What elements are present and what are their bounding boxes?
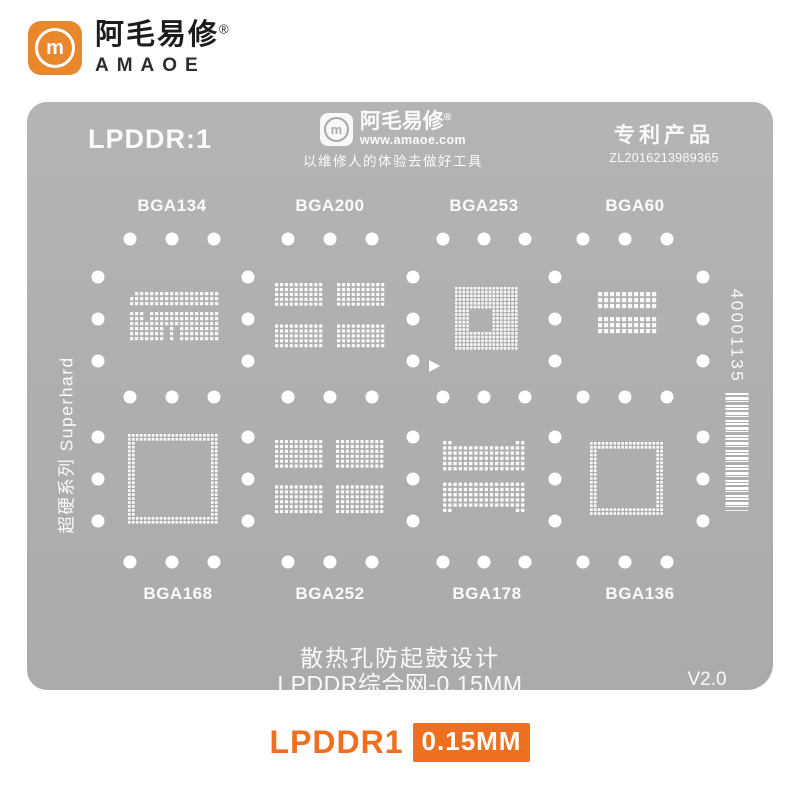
footprint-label: BGA60 [605, 196, 664, 216]
brand-text: 阿毛易修® AMAOE [95, 20, 231, 77]
patent-title: 专利产品 [604, 119, 724, 149]
amaoe-plate-monogram-icon: m [324, 117, 349, 142]
mesh-spec-note: LPDDR综合网-0.15MM [0, 665, 800, 699]
plate-logo-name: 阿毛易修® [360, 111, 466, 133]
brand-name-en: AMAOE [95, 55, 231, 77]
brand-name-cn: 阿毛易修® [95, 20, 231, 52]
footprint-label: BGA168 [143, 584, 212, 604]
plate-center-logo: m 阿毛易修® www.amaoe.com 以维修人的体验去做好工具 [303, 111, 483, 170]
amaoe-plate-logo-icon: m [320, 113, 353, 146]
caption-model: LPDDR1 [270, 724, 404, 761]
amaoe-logo-icon: m [28, 21, 82, 75]
plate-logo-text: 阿毛易修® www.amaoe.com [360, 111, 466, 147]
footprint-label: BGA134 [137, 196, 206, 216]
plate-registered-mark: ® [444, 112, 451, 123]
series-title: LPDDR:1 [88, 124, 212, 155]
amaoe-monogram-icon: m [35, 28, 75, 68]
version-label: V2.0 [687, 669, 726, 691]
serial-number: 40001135 [727, 289, 747, 383]
caption-thickness-badge: 0.15MM [413, 723, 531, 762]
patent-block: 专利产品 ZL2016213989365 [604, 119, 724, 165]
brand-logo: m 阿毛易修® AMAOE [28, 20, 231, 77]
footprint-label: BGA136 [605, 584, 674, 604]
plate-logo-url: www.amaoe.com [360, 133, 466, 147]
footprint-label: BGA252 [295, 584, 364, 604]
footprint-label: BGA200 [295, 196, 364, 216]
bottom-caption: LPDDR1 0.15MM [0, 723, 800, 762]
plate-logo-name-text: 阿毛易修 [360, 110, 444, 133]
brand-name-cn-text: 阿毛易修 [95, 19, 219, 51]
series-side-label: 超硬系列 Superhard [54, 356, 79, 534]
serial-block: 40001135 [726, 289, 749, 511]
product-photo: m 阿毛易修® AMAOE LPDDR:1 m 阿毛易修® www.amaoe.… [0, 0, 800, 800]
footprint-label: BGA253 [449, 196, 518, 216]
plate-logo-row: m 阿毛易修® www.amaoe.com [303, 111, 483, 147]
plate-logo-slogan: 以维修人的体验去做好工具 [303, 150, 483, 170]
registered-mark: ® [219, 21, 231, 36]
patent-number: ZL2016213989365 [604, 151, 724, 165]
barcode [726, 393, 749, 511]
footprint-label: BGA178 [452, 584, 521, 604]
